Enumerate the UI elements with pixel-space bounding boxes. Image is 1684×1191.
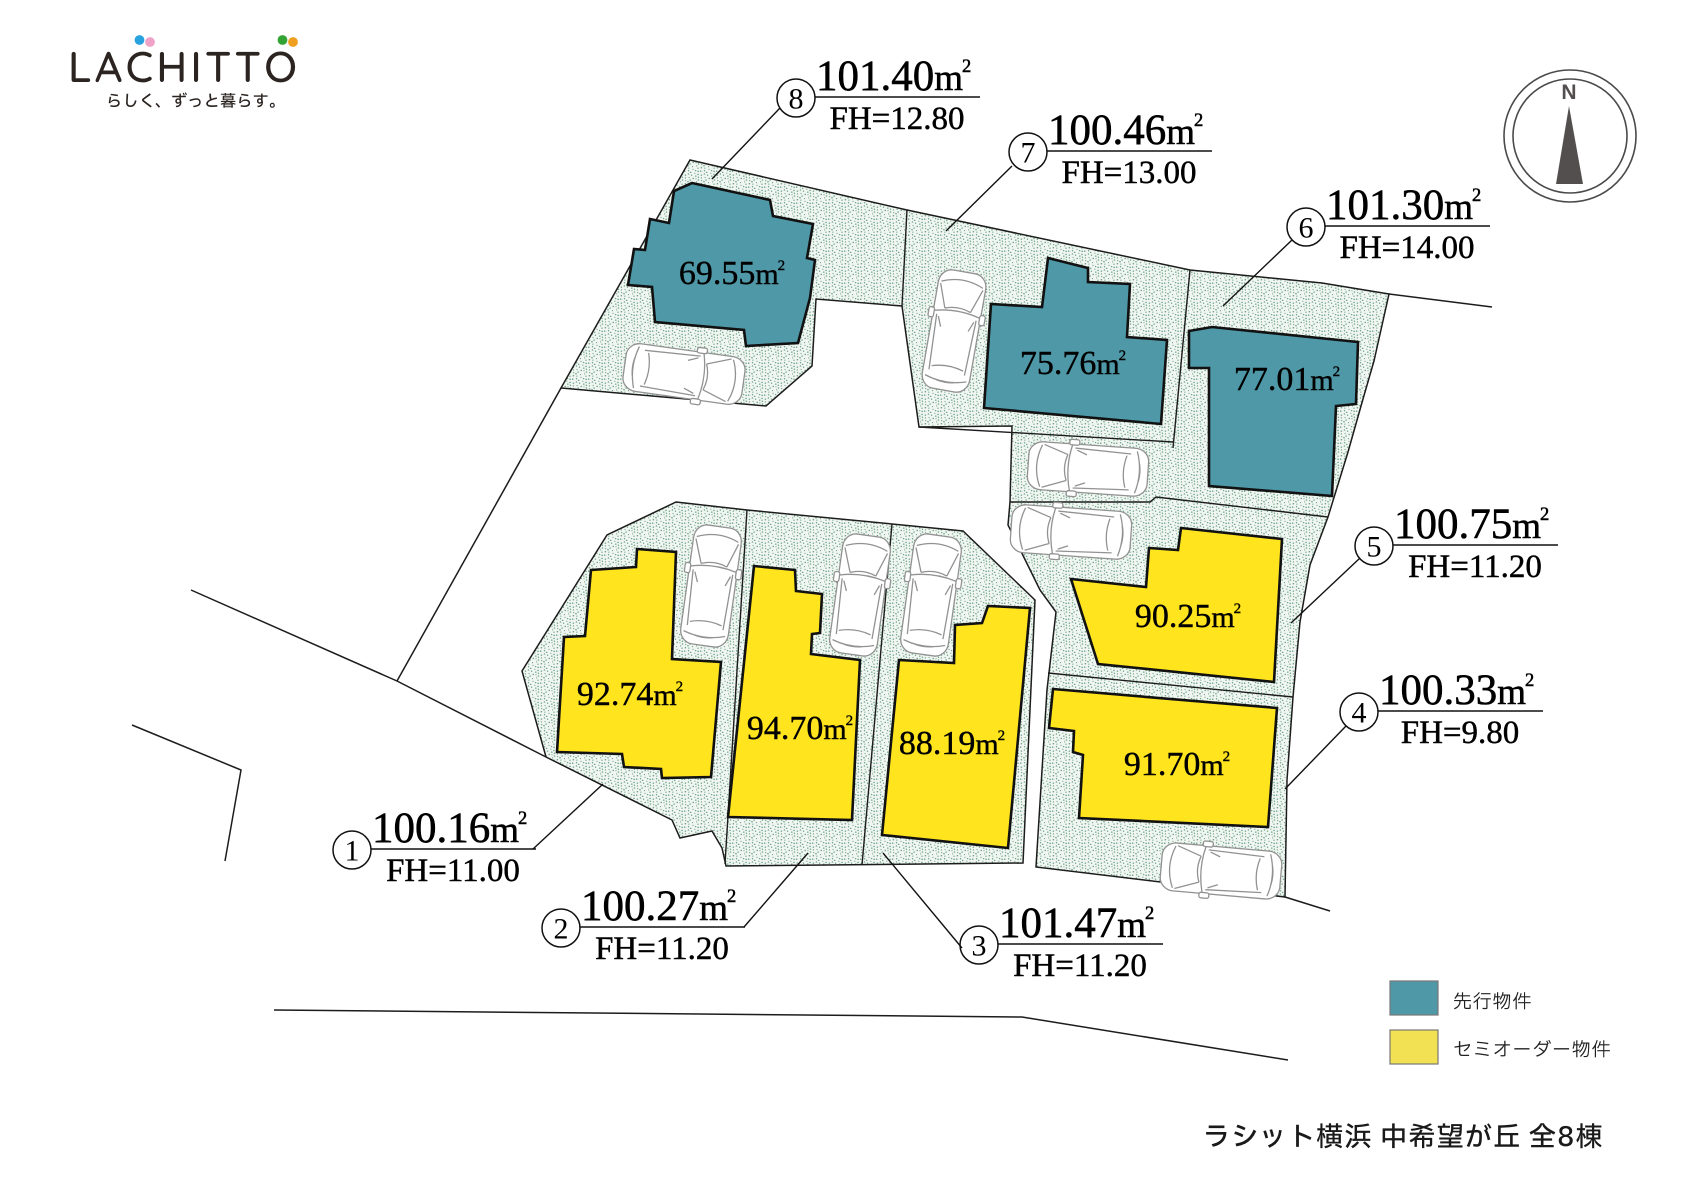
svg-text:88.19m2: 88.19m2 (899, 725, 1005, 762)
svg-text:3: 3 (972, 930, 987, 963)
svg-text:1: 1 (345, 835, 360, 868)
svg-text:5: 5 (1367, 531, 1382, 564)
svg-text:FH=11.00: FH=11.00 (386, 853, 520, 889)
svg-text:92.74m2: 92.74m2 (577, 676, 683, 713)
svg-text:101.47m2: 101.47m2 (999, 900, 1154, 947)
svg-text:100.27m2: 100.27m2 (581, 883, 736, 930)
svg-text:FH=11.20: FH=11.20 (1013, 948, 1147, 984)
svg-text:77.01m2: 77.01m2 (1234, 361, 1340, 398)
svg-text:FH=11.20: FH=11.20 (1408, 549, 1542, 585)
svg-text:FH=13.00: FH=13.00 (1061, 155, 1196, 191)
svg-text:N: N (1561, 81, 1576, 104)
svg-text:94.70m2: 94.70m2 (747, 710, 853, 747)
svg-text:FH=11.20: FH=11.20 (595, 931, 729, 967)
svg-text:69.55m2: 69.55m2 (679, 255, 785, 292)
svg-text:2: 2 (554, 913, 569, 946)
svg-text:FH=12.80: FH=12.80 (829, 101, 964, 137)
svg-text:100.16m2: 100.16m2 (372, 805, 527, 852)
svg-text:4: 4 (1352, 697, 1367, 730)
svg-text:FH=14.00: FH=14.00 (1339, 230, 1474, 266)
svg-text:8: 8 (789, 83, 804, 116)
svg-text:100.33m2: 100.33m2 (1379, 667, 1534, 714)
svg-text:6: 6 (1299, 212, 1314, 245)
svg-text:100.46m2: 100.46m2 (1048, 107, 1203, 154)
svg-text:101.30m2: 101.30m2 (1326, 182, 1481, 229)
svg-text:FH=9.80: FH=9.80 (1401, 715, 1520, 751)
svg-text:91.70m2: 91.70m2 (1124, 746, 1230, 783)
svg-text:100.75m2: 100.75m2 (1394, 501, 1549, 548)
svg-text:75.76m2: 75.76m2 (1020, 345, 1126, 382)
svg-text:101.40m2: 101.40m2 (816, 53, 971, 100)
svg-text:7: 7 (1021, 137, 1036, 170)
svg-text:90.25m2: 90.25m2 (1135, 598, 1241, 635)
